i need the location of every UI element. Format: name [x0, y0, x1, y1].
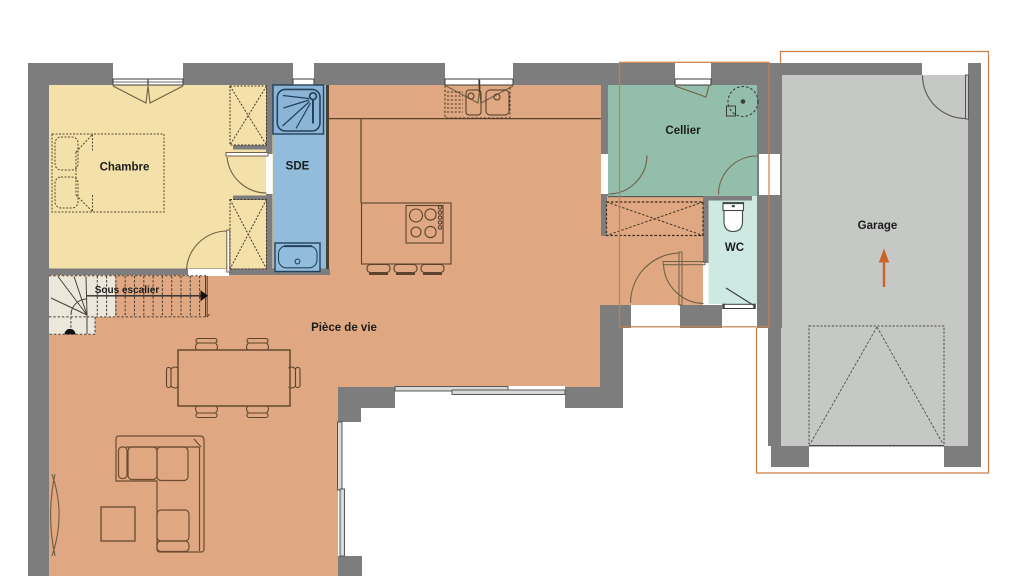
svg-text:SDE: SDE — [286, 161, 310, 173]
svg-text:Garage: Garage — [858, 220, 898, 232]
svg-text:Sous escalier: Sous escalier — [95, 285, 160, 296]
svg-text:Chambre: Chambre — [100, 162, 150, 174]
svg-text:Cellier: Cellier — [665, 125, 701, 137]
svg-text:Pièce de vie: Pièce de vie — [311, 322, 377, 334]
svg-text:WC: WC — [725, 242, 744, 254]
